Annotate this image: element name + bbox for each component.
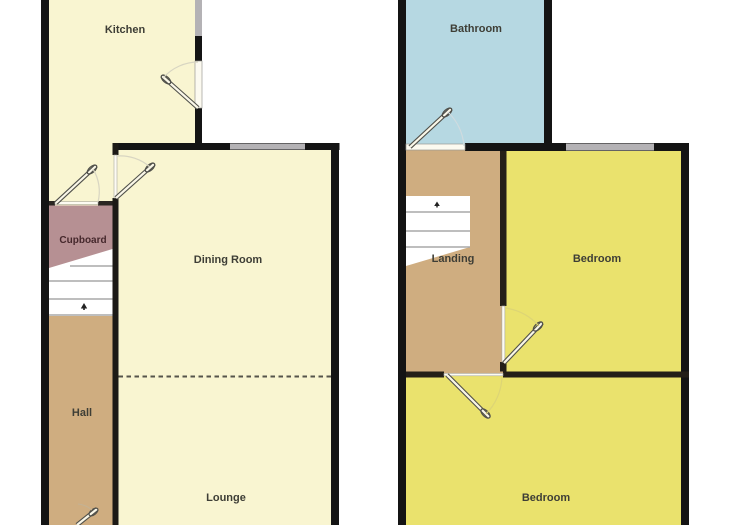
svg-text:Cupboard: Cupboard [59,235,106,246]
svg-text:Bedroom: Bedroom [522,492,571,504]
svg-text:Landing: Landing [432,253,475,265]
svg-text:Bathroom: Bathroom [450,23,502,35]
svg-text:Kitchen: Kitchen [105,24,146,36]
svg-text:Lounge: Lounge [206,492,246,504]
svg-text:Hall: Hall [72,407,92,419]
svg-text:Bedroom: Bedroom [573,253,622,265]
svg-text:Dining Room: Dining Room [194,254,263,266]
